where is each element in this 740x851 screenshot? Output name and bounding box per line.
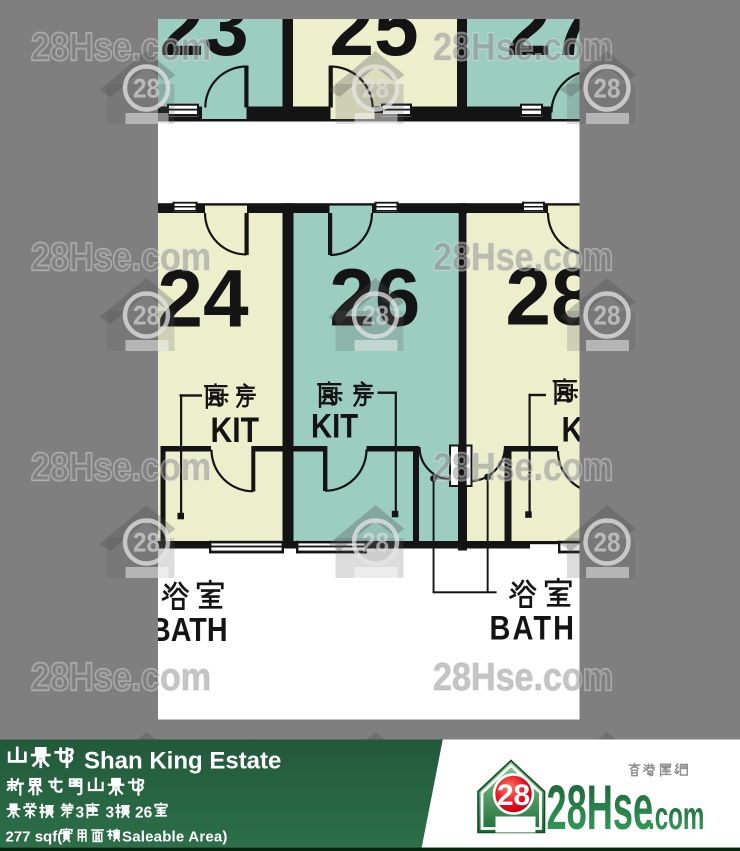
svg-text:3: 3: [76, 805, 85, 822]
svg-text:28Hse.com: 28Hse.com: [433, 655, 613, 699]
svg-text:3: 3: [106, 805, 115, 822]
svg-text:28Hse.com: 28Hse.com: [433, 235, 613, 279]
svg-text:28Hse.com: 28Hse.com: [31, 25, 211, 69]
svg-text:277 sqf(: 277 sqf(: [6, 829, 63, 846]
svg-text:KIT: KIT: [211, 410, 260, 450]
svg-text:Shan King Estate: Shan King Estate: [84, 748, 281, 775]
svg-text:28Hse.com: 28Hse.com: [433, 25, 613, 69]
svg-text:Saleable Area): Saleable Area): [122, 829, 228, 846]
svg-text:28Hse.com: 28Hse.com: [31, 655, 211, 699]
svg-text:28: 28: [497, 779, 530, 812]
svg-text:28Hse.com: 28Hse.com: [31, 445, 211, 489]
svg-text:28Hse.com: 28Hse.com: [433, 445, 613, 489]
svg-text:26: 26: [135, 805, 153, 822]
svg-text:28Hse.com: 28Hse.com: [31, 235, 211, 279]
svg-text:BATH: BATH: [150, 611, 228, 648]
svg-text:.com: .com: [648, 794, 704, 837]
svg-text:BATH: BATH: [490, 608, 577, 647]
svg-text:KIT: KIT: [311, 406, 359, 445]
svg-text:28Hse: 28Hse: [547, 771, 654, 842]
